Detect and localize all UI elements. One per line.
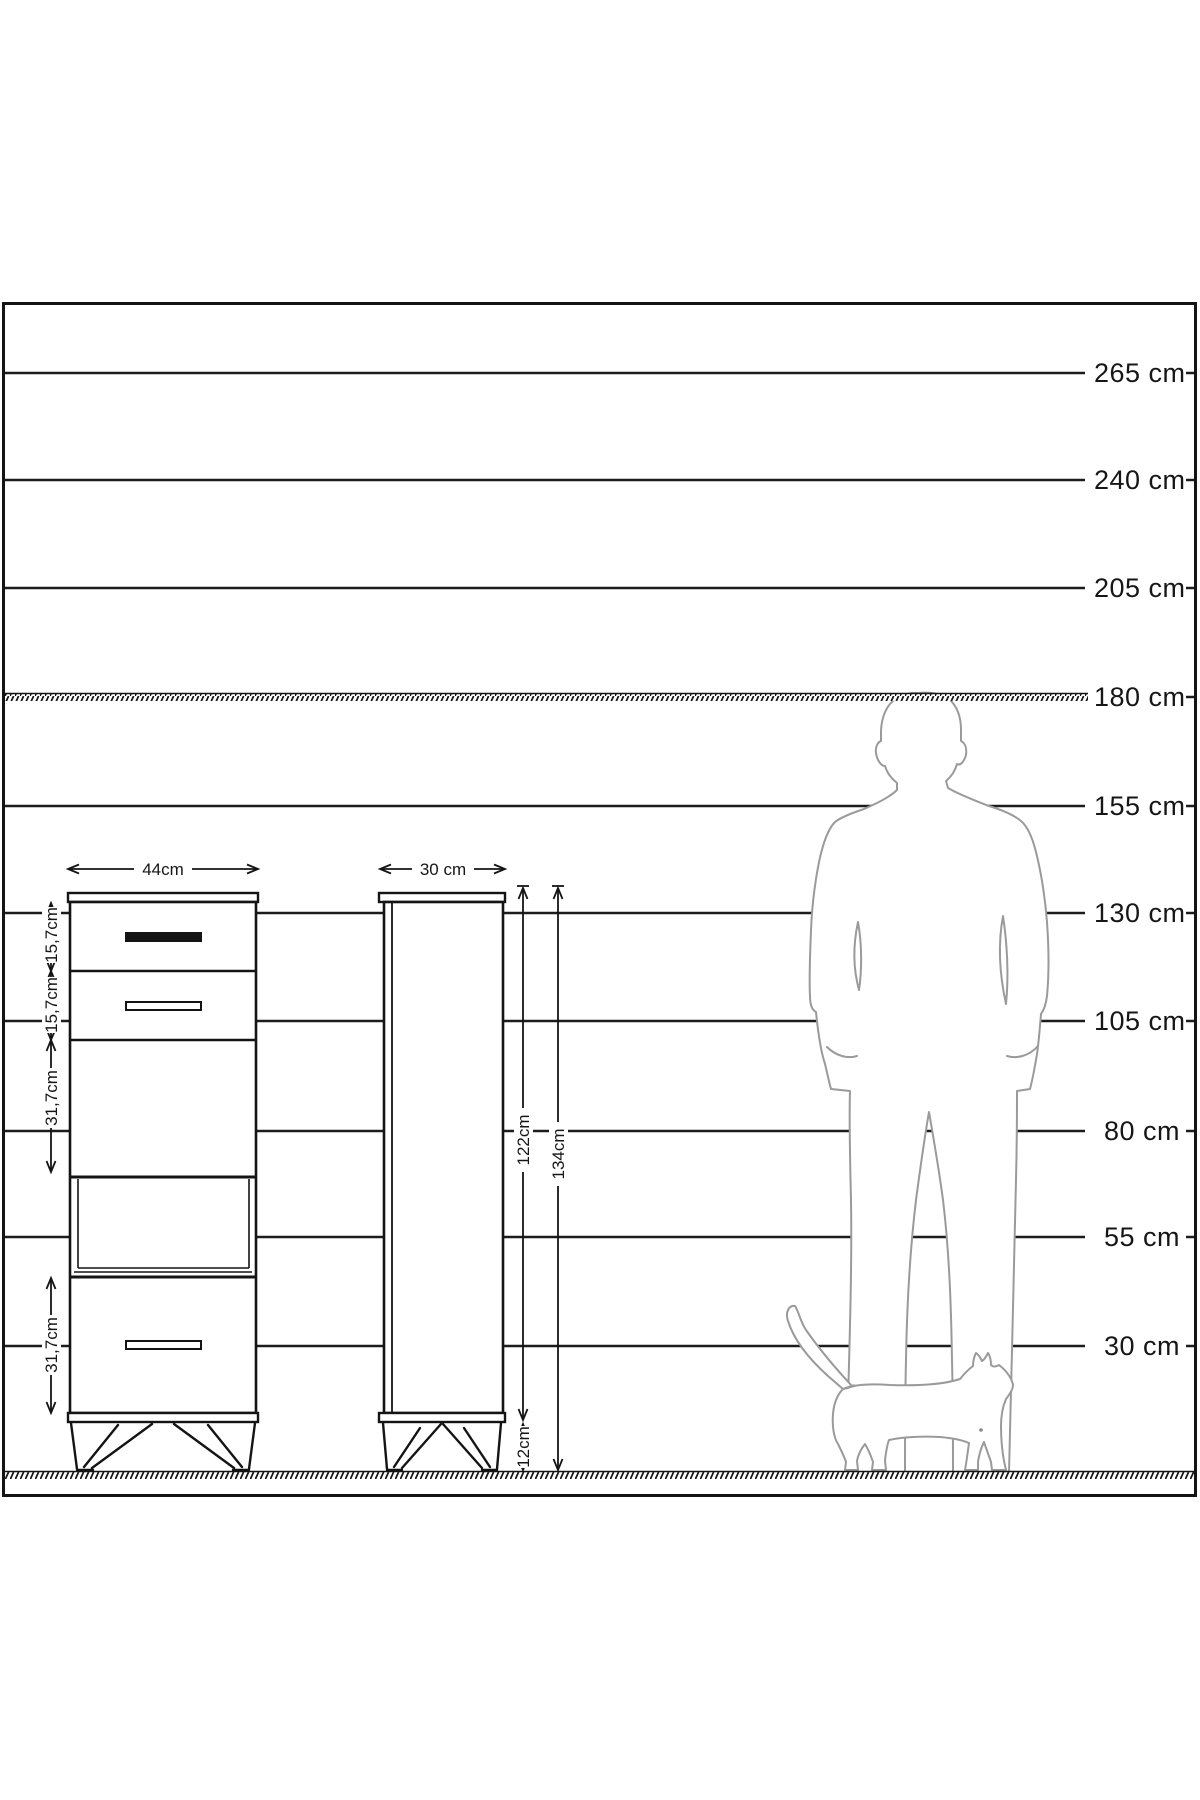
diagram-canvas: 44cm 30 cm 15,7cm 15,7cm 31,7cm 31,7cm (0, 0, 1200, 1800)
front-bottom-plate (68, 1413, 258, 1422)
scale-label-30cm: 30 cm (1104, 1331, 1180, 1361)
front-top-slab (68, 893, 258, 902)
cabinet-front-view (68, 893, 258, 1470)
scale-label-130cm: 130 cm (1094, 898, 1186, 928)
scale-label-265cm: 265 cm (1094, 358, 1186, 388)
cat-fur-dot (979, 1428, 983, 1432)
drawer-handle-1 (125, 932, 202, 942)
dim-side-depth-label: 30 cm (420, 860, 466, 879)
dim-drawer3-height: 31,7cm (42, 1070, 61, 1126)
dim-leg-height: 12cm (514, 1426, 533, 1468)
drawer-handle-2 (126, 1002, 201, 1010)
dim-drawer4-height: 31,7cm (42, 1317, 61, 1373)
scale-label-80cm: 80 cm (1104, 1116, 1180, 1146)
scale-labels: 265 cm 240 cm 205 cm 180 cm 155 cm 130 c… (1094, 358, 1186, 1361)
front-legs (71, 1423, 255, 1470)
dim-drawer1-height: 15,7cm (42, 907, 61, 963)
scale-label-55cm: 55 cm (1104, 1222, 1180, 1252)
cabinet-side-view (379, 893, 505, 1470)
scale-label-205cm: 205 cm (1094, 573, 1186, 603)
front-body (70, 902, 256, 1413)
dim-drawer2-height: 15,7cm (42, 977, 61, 1033)
drawer-handle-3 (126, 1341, 201, 1349)
dim-front-width-label: 44cm (142, 860, 184, 879)
person-silhouette (810, 693, 1049, 1473)
scale-label-155cm: 155 cm (1094, 791, 1186, 821)
side-legs (383, 1423, 501, 1470)
scale-label-105cm: 105 cm (1094, 1006, 1186, 1036)
side-body (384, 902, 503, 1413)
side-bottom-plate (379, 1413, 505, 1422)
scale-label-240cm: 240 cm (1094, 465, 1186, 495)
size-diagram-page: 44cm 30 cm 15,7cm 15,7cm 31,7cm 31,7cm (0, 0, 1200, 1800)
dim-body-height: 122cm (514, 1114, 533, 1165)
dim-total-height: 134cm (549, 1128, 568, 1179)
scale-label-180cm: 180 cm (1094, 682, 1186, 712)
side-top-slab (379, 893, 505, 902)
